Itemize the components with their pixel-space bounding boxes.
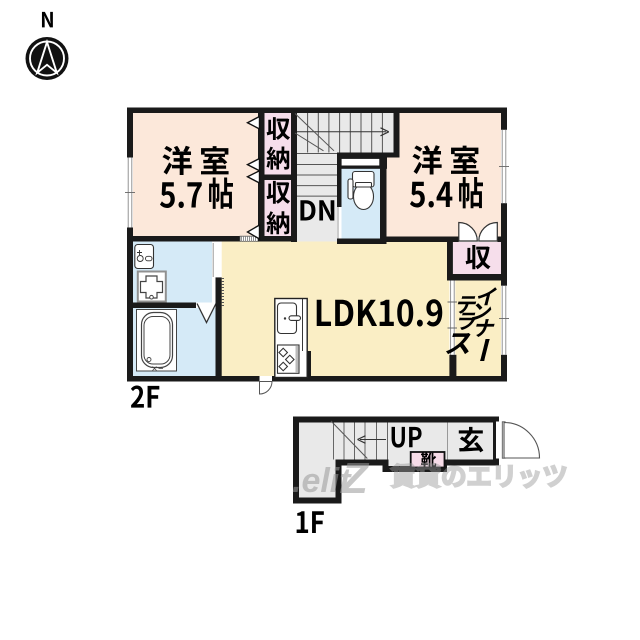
- svg-text:Z: Z: [339, 454, 370, 503]
